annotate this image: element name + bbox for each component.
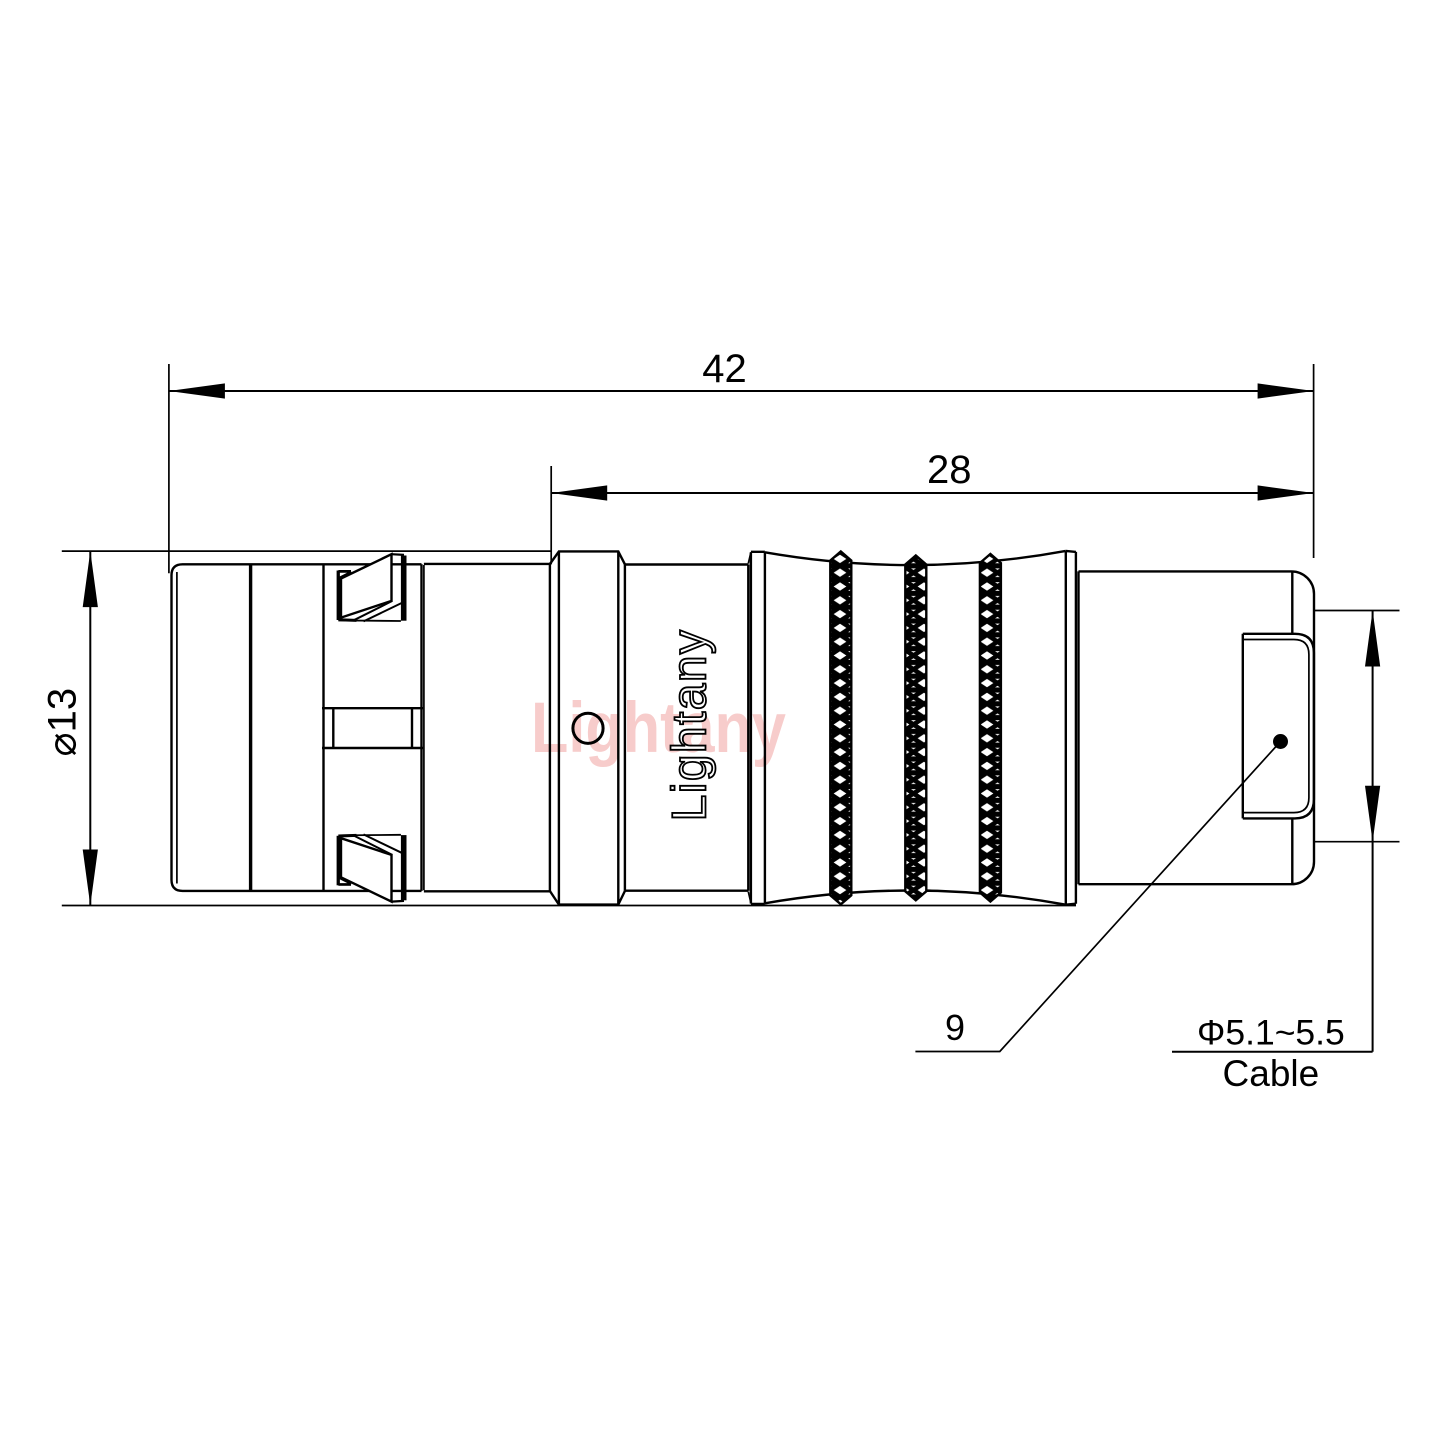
svg-text:Φ5.1~5.5: Φ5.1~5.5	[1197, 1013, 1345, 1053]
svg-text:Lightany: Lightany	[664, 629, 717, 822]
svg-text:⌀13: ⌀13	[40, 688, 84, 757]
svg-text:Cable: Cable	[1223, 1053, 1320, 1094]
svg-text:28: 28	[927, 448, 972, 492]
svg-text:42: 42	[702, 347, 747, 391]
svg-text:9: 9	[945, 1007, 965, 1048]
